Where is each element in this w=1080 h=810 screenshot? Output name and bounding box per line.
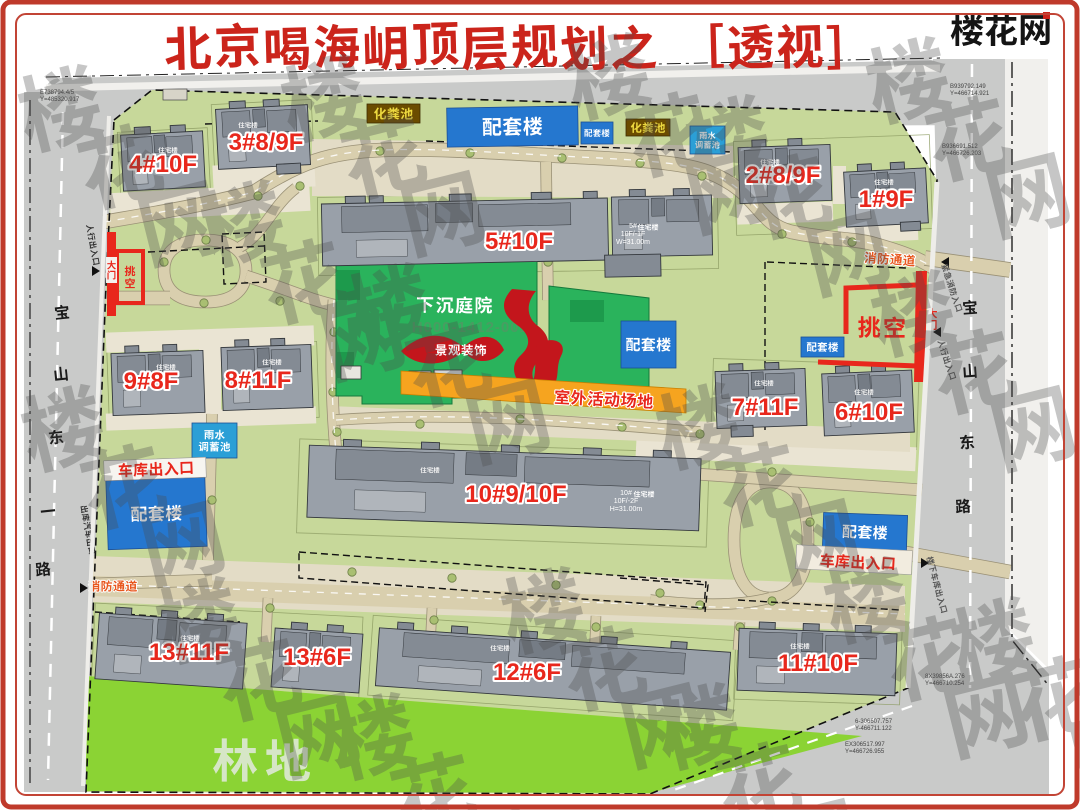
svg-text:Y=466714.921: Y=466714.921 bbox=[950, 91, 990, 97]
svg-text:1#9F: 1#9F bbox=[859, 186, 914, 213]
svg-text:3#8/9F: 3#8/9F bbox=[229, 129, 304, 156]
svg-text:B939792.149: B939792.149 bbox=[950, 84, 986, 90]
svg-text:W=31.00m: W=31.00m bbox=[616, 239, 650, 246]
svg-text:Y=466726.955: Y=466726.955 bbox=[845, 749, 885, 755]
svg-text:5#10F: 5#10F bbox=[485, 228, 553, 255]
svg-text:8#11F: 8#11F bbox=[225, 367, 292, 394]
svg-text:10#: 10# bbox=[620, 490, 632, 497]
svg-text:13#6F: 13#6F bbox=[283, 644, 351, 671]
svg-text:12#6F: 12#6F bbox=[493, 659, 561, 686]
svg-text:10F/-2F: 10F/-2F bbox=[614, 498, 639, 505]
svg-text:H=31.00m: H=31.00m bbox=[610, 506, 643, 513]
svg-text:11#10F: 11#10F bbox=[778, 650, 858, 677]
svg-text:5#: 5# bbox=[629, 223, 637, 230]
svg-text:6#10F: 6#10F bbox=[835, 399, 903, 426]
svg-text:EX306517.997: EX306517.997 bbox=[845, 742, 885, 748]
svg-text:10F/-1F: 10F/-1F bbox=[621, 231, 646, 238]
svg-text:9#8F: 9#8F bbox=[124, 368, 179, 395]
svg-text:6-306607.757: 6-306607.757 bbox=[855, 719, 893, 725]
svg-text:Y-466711.122: Y-466711.122 bbox=[855, 726, 892, 732]
svg-text:7#11F: 7#11F bbox=[732, 394, 799, 421]
svg-text:10#9/10F: 10#9/10F bbox=[465, 481, 566, 508]
